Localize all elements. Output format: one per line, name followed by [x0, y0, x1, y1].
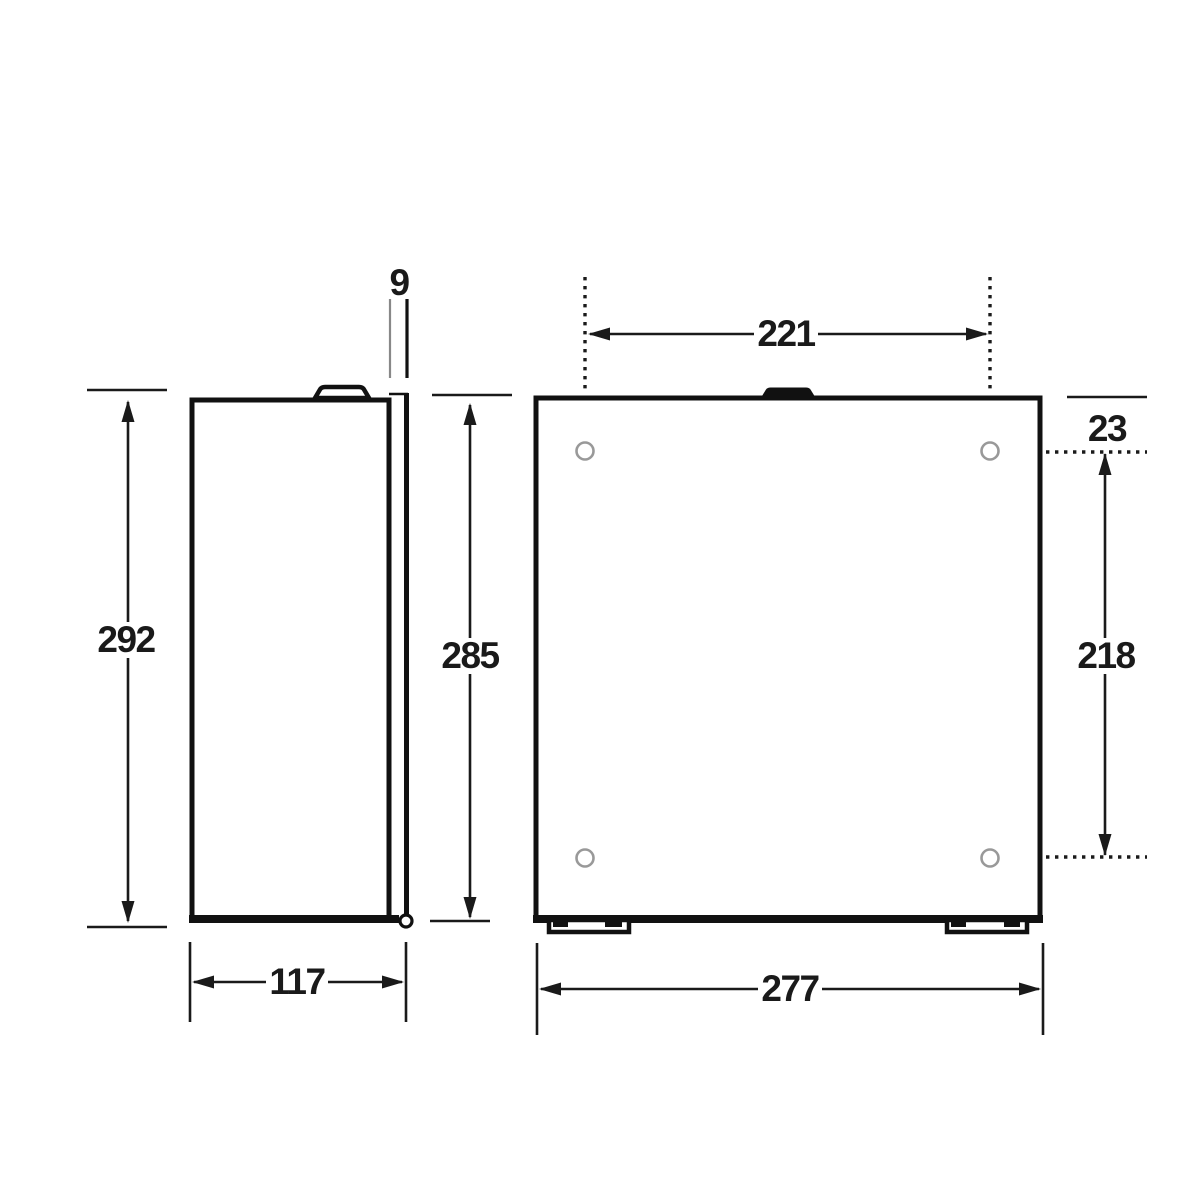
mounting-hole-bottom-right — [982, 850, 999, 867]
arrowhead-right — [1019, 983, 1041, 996]
side-view-top-tab — [315, 387, 369, 398]
dimension-body-height: 285 — [430, 395, 512, 921]
arrowhead-down — [122, 901, 135, 923]
front-view-top-tab — [762, 388, 815, 397]
arrowhead-right — [966, 328, 988, 341]
arrowhead-up — [1099, 453, 1112, 475]
dimension-hole-spacing-vertical: 218 — [1046, 452, 1147, 857]
dim-label-overall-height: 292 — [97, 619, 155, 660]
dimension-overall-width: 277 — [537, 943, 1043, 1035]
dimension-hole-offset-top: 23 — [1067, 397, 1147, 449]
arrowhead-left — [192, 976, 214, 989]
dimension-door-thickness: 9 — [385, 262, 413, 378]
dim-label-overall-width: 277 — [761, 968, 818, 1009]
mounting-hole-top-left — [577, 443, 594, 460]
dim-label-hole-offset-top: 23 — [1088, 408, 1127, 449]
arrowhead-left — [588, 328, 610, 341]
side-view-door-pivot-circle — [400, 915, 412, 927]
arrowhead-up — [122, 400, 135, 422]
technical-drawing-canvas: 9 292 285 117 221 — [0, 0, 1200, 1200]
dimension-depth: 117 — [190, 942, 406, 1022]
dim-label-hole-spacing-vertical: 218 — [1077, 635, 1135, 676]
arrowhead-down — [464, 897, 477, 919]
arrowhead-up — [464, 403, 477, 425]
dimension-hole-spacing-horizontal: 221 — [585, 277, 990, 393]
dimension-drawing: 9 292 285 117 221 — [0, 0, 1200, 1200]
dimension-overall-height: 292 — [87, 390, 167, 927]
mounting-hole-top-right — [982, 443, 999, 460]
mounting-hole-bottom-left — [577, 850, 594, 867]
dim-label-body-height: 285 — [441, 635, 499, 676]
side-view-body-outline — [192, 400, 389, 918]
arrowhead-down — [1099, 834, 1112, 856]
arrowhead-right — [382, 976, 404, 989]
front-view — [533, 388, 1043, 933]
dim-label-depth: 117 — [269, 961, 324, 1002]
front-view-foot-left — [549, 919, 629, 932]
side-view — [189, 387, 412, 927]
front-view-body-outline — [536, 398, 1040, 918]
dim-label-door-thickness: 9 — [389, 262, 409, 303]
arrowhead-left — [539, 983, 561, 996]
dim-label-hole-spacing-horizontal: 221 — [757, 313, 815, 354]
front-view-foot-right — [947, 919, 1027, 932]
